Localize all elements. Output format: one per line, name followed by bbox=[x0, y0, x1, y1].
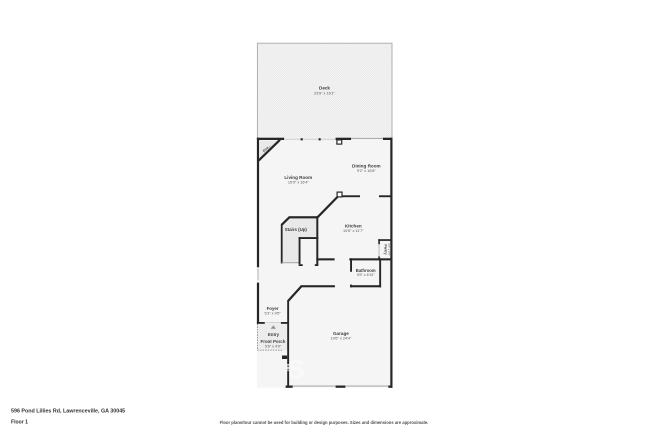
svg-text:Dining Room: Dining Room bbox=[352, 163, 381, 168]
svg-text:Foyer: Foyer bbox=[267, 306, 279, 311]
svg-text:23'9" x 16'1": 23'9" x 16'1" bbox=[314, 91, 335, 95]
svg-text:Living Room: Living Room bbox=[284, 175, 312, 180]
svg-text:Front Porch: Front Porch bbox=[261, 339, 286, 344]
svg-text:5'5" x 6'10": 5'5" x 6'10" bbox=[357, 273, 375, 277]
svg-text:Kitchen: Kitchen bbox=[345, 223, 362, 228]
svg-text:Stairs (Up): Stairs (Up) bbox=[285, 227, 308, 232]
svg-text:Garage: Garage bbox=[333, 331, 349, 336]
svg-text:S: S bbox=[287, 354, 304, 384]
svg-text:5'6" x 4'9": 5'6" x 4'9" bbox=[265, 345, 282, 349]
svg-text:Bathroom: Bathroom bbox=[356, 268, 376, 273]
svg-text:10'8" x 11'7": 10'8" x 11'7" bbox=[343, 229, 364, 233]
svg-text:9'2" x 16'8": 9'2" x 16'8" bbox=[357, 169, 376, 173]
svg-text:Floor plans/tour cannot be use: Floor plans/tour cannot be used for buil… bbox=[220, 420, 429, 425]
svg-text:5'3" x 9'5": 5'3" x 9'5" bbox=[265, 311, 282, 315]
svg-text:3'6" x 2'6": 3'6" x 2'6" bbox=[387, 243, 391, 256]
svg-text:15'9" x 16'4": 15'9" x 16'4" bbox=[288, 181, 309, 185]
svg-text:Pantry: Pantry bbox=[383, 244, 387, 254]
svg-text:Entry: Entry bbox=[268, 332, 280, 337]
svg-text:596 Pond Lillies Rd, Lawrencev: 596 Pond Lillies Rd, Lawrenceville, GA 3… bbox=[11, 409, 125, 415]
svg-text:19'6" x 24'4": 19'6" x 24'4" bbox=[330, 337, 351, 341]
svg-text:Floor 1: Floor 1 bbox=[11, 420, 28, 426]
svg-text:Deck: Deck bbox=[319, 86, 330, 91]
